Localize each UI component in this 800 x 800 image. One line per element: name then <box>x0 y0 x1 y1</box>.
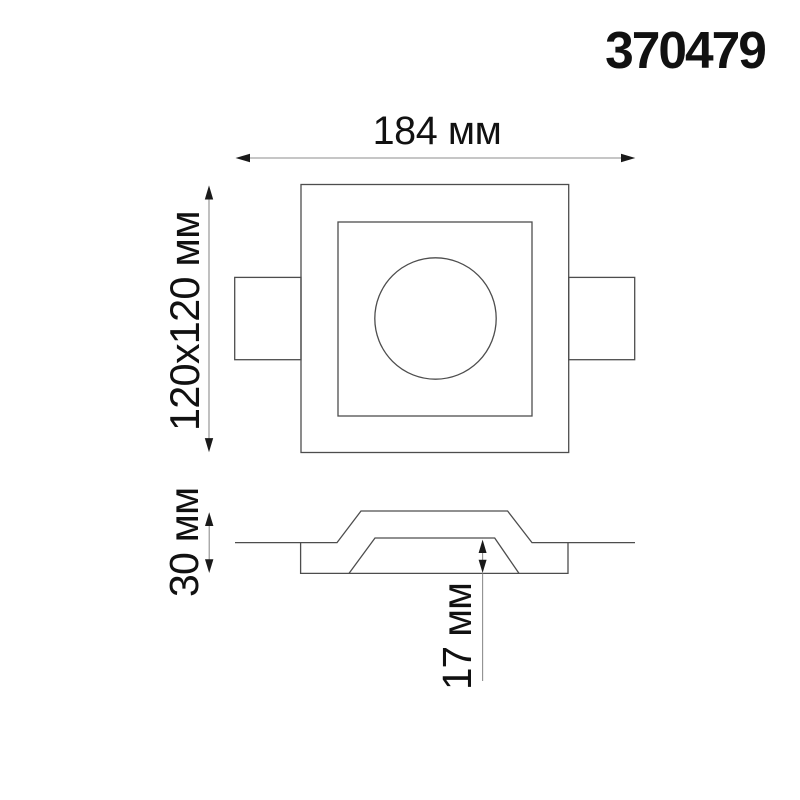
svg-text:370479: 370479 <box>605 21 765 79</box>
svg-text:17 мм: 17 мм <box>434 583 480 690</box>
svg-text:30 мм: 30 мм <box>161 488 207 597</box>
svg-text:184 мм: 184 мм <box>373 109 502 153</box>
svg-text:120x120 мм: 120x120 мм <box>161 211 208 431</box>
